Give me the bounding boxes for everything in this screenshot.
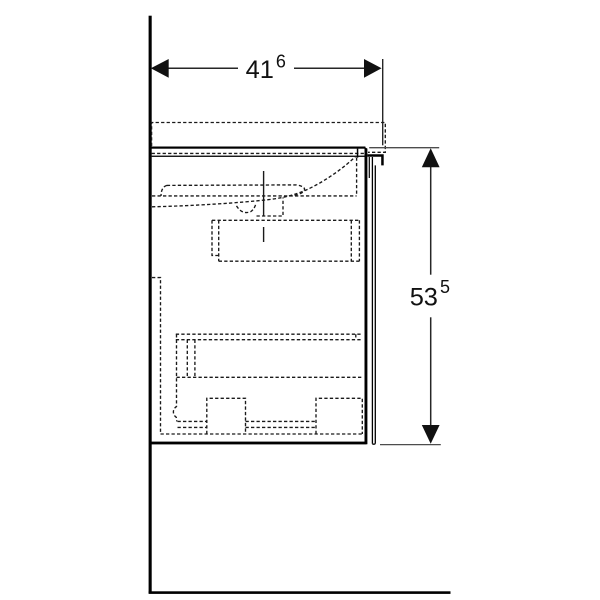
svg-text:6: 6 (276, 52, 286, 72)
svg-text:53: 53 (410, 284, 438, 312)
svg-text:5: 5 (440, 277, 450, 297)
svg-text:41: 41 (246, 56, 274, 84)
